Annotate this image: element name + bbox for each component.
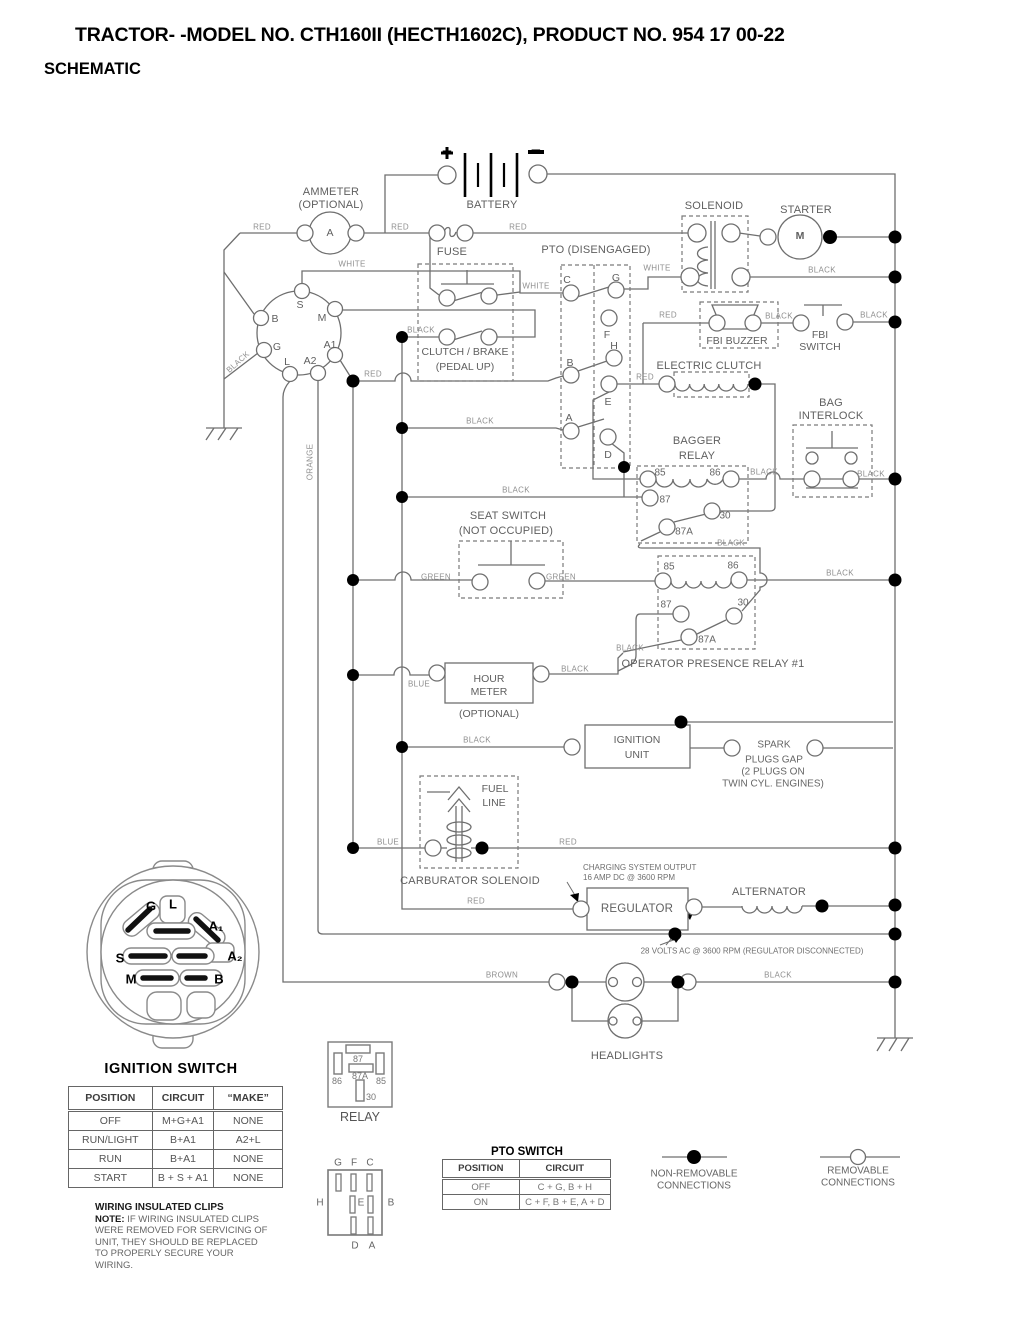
headlights-label: HEADLIGHTS: [591, 1050, 663, 1062]
pto-label: PTO (DISENGAGED): [541, 244, 650, 256]
wire-black-3: BLACK: [860, 311, 888, 320]
line-label: LINE: [482, 797, 505, 809]
wire-black-14: BLACK: [764, 971, 792, 980]
conn-l: L: [169, 897, 177, 912]
pto-conn-e: E: [358, 1198, 365, 1209]
ign-pin-s: S: [296, 299, 303, 311]
wire-black-13: BLACK: [463, 736, 491, 745]
op-pin-87: 87: [660, 600, 671, 611]
unit-label: UNIT: [625, 749, 650, 761]
wire-red-5: RED: [636, 373, 654, 382]
clutch-brake-label: CLUTCH / BRAKE: [422, 346, 509, 358]
wire-white-2: WHITE: [522, 282, 549, 291]
conn-s: S: [116, 951, 125, 966]
conn-a2: A₂: [227, 949, 242, 964]
pto-pin-c: C: [563, 274, 571, 286]
wire-blue-1: BLUE: [408, 680, 430, 689]
bag-interlock-label: INTERLOCK: [799, 410, 864, 422]
pto-th-position: POSITION: [443, 1160, 520, 1179]
charging-output-label-2: 16 AMP DC @ 3600 RPM: [583, 873, 675, 882]
bagger-pin-30: 30: [719, 511, 730, 522]
ignition-switch-table: POSITION CIRCUIT “MAKE” OFF M+G+A1 NONE …: [68, 1086, 283, 1188]
conn-a1: A₁: [209, 919, 224, 934]
ammeter-label: AMMETER: [303, 186, 359, 198]
relay-conn-30: 30: [366, 1092, 376, 1102]
ammeter-optional-label: (OPTIONAL): [299, 199, 364, 211]
carburetor-solenoid-label: CARBURATOR SOLENOID: [400, 875, 540, 887]
battery-plus: +: [442, 142, 452, 162]
pto-pin-e: E: [604, 396, 611, 408]
bagger-relay-label: RELAY: [679, 450, 715, 462]
seat-switch-label: SEAT SWITCH: [470, 510, 546, 522]
wire-red-8: RED: [467, 897, 485, 906]
wire-red-2: RED: [391, 223, 409, 232]
table-row: RUN/LIGHT B+A1 A2+L: [69, 1131, 283, 1150]
wiring-note-title: WIRING INSULATED CLIPS: [95, 1202, 224, 1213]
wiring-note: WIRING INSULATED CLIPS NOTE: IF WIRING I…: [95, 1202, 271, 1272]
solenoid-label: SOLENOID: [685, 200, 743, 212]
two-plugs-label: (2 PLUGS ON: [741, 767, 804, 778]
pto-conn-g: G: [334, 1158, 342, 1169]
ammeter-a: A: [326, 227, 333, 239]
wiring-note-label: NOTE:: [95, 1214, 125, 1225]
pto-pin-b: B: [566, 357, 573, 369]
wire-black-4: BLACK: [407, 326, 435, 335]
table-row: OFF C + G, B + H: [443, 1179, 611, 1195]
wire-green-1: GREEN: [421, 573, 451, 582]
meter-label: METER: [471, 686, 508, 698]
op-pin-85: 85: [663, 562, 674, 573]
pto-conn-d: D: [351, 1241, 358, 1252]
bag-label: BAG: [819, 397, 843, 409]
legend-removable-2: CONNECTIONS: [821, 1178, 895, 1189]
wire-orange-1: ORANGE: [306, 444, 315, 480]
wire-red-3: RED: [509, 223, 527, 232]
wires: [206, 174, 913, 1051]
fbi-switch-label: SWITCH: [799, 341, 840, 353]
wire-green-2: GREEN: [546, 573, 576, 582]
wire-blue-2: BLUE: [377, 838, 399, 847]
relay-conn-86: 86: [332, 1076, 342, 1086]
fuel-label: FUEL: [482, 783, 509, 795]
electric-clutch-box: [674, 372, 749, 397]
fuse-label: FUSE: [437, 246, 467, 258]
regulator-label: REGULATOR: [601, 903, 673, 915]
non-removable-symbol: [687, 1150, 701, 1164]
electric-clutch-label: ELECTRIC CLUTCH: [656, 360, 761, 372]
relay-conn-87a: 87A: [352, 1071, 368, 1081]
wire-black-11: BLACK: [561, 665, 589, 674]
schematic-page: TRACTOR- -MODEL NO. CTH160II (HECTH1602C…: [0, 0, 1024, 1322]
table-row: ON C + F, B + E, A + D: [443, 1195, 611, 1210]
hour-label: HOUR: [474, 673, 505, 685]
bagger-pin-87a: 87A: [675, 527, 693, 538]
battery-minus: −: [531, 141, 541, 161]
wire-black-8: BLACK: [857, 470, 885, 479]
ign-th-position: POSITION: [69, 1087, 153, 1111]
pto-th-circuit: CIRCUIT: [519, 1160, 610, 1179]
op-pin-86: 86: [727, 561, 738, 572]
ign-pin-m: M: [318, 312, 327, 324]
wire-red-1: RED: [253, 223, 271, 232]
pto-conn-c: C: [366, 1158, 373, 1169]
pto-conn-a: A: [369, 1241, 376, 1252]
wire-black-6: BLACK: [502, 486, 530, 495]
legend-symbols: [662, 1150, 900, 1165]
ign-pin-g: G: [273, 341, 281, 353]
bagger-pin-86: 86: [709, 468, 720, 479]
component-boxes: [445, 305, 758, 930]
bagger-label: BAGGER: [673, 435, 721, 447]
wire-red-4: RED: [364, 370, 382, 379]
ignition-unit-box: [585, 725, 690, 768]
table-row: RUN B+A1 NONE: [69, 1150, 283, 1169]
spark-label: SPARK: [757, 740, 790, 751]
plugs-gap-label: PLUGS GAP: [745, 755, 803, 766]
conn-b: B: [214, 972, 223, 987]
charging-output-label-1: CHARGING SYSTEM OUTPUT: [583, 863, 696, 872]
op-pin-30: 30: [737, 598, 748, 609]
wire-black-12: BLACK: [616, 644, 644, 653]
wire-brown-1: BROWN: [486, 971, 518, 980]
wire-white-3: WHITE: [643, 264, 670, 273]
ignition-switch-title: IGNITION SWITCH: [104, 1061, 237, 1077]
volts-annotation: 28 VOLTS AC @ 3600 RPM (REGULATOR DISCON…: [641, 947, 864, 956]
starter-label: STARTER: [780, 204, 832, 216]
wire-black-9: BLACK: [717, 539, 745, 548]
pto-pin-a: A: [565, 412, 572, 424]
fbi-label: FBI: [812, 329, 828, 341]
wire-black-5: BLACK: [466, 417, 494, 426]
ign-pin-b: B: [271, 313, 278, 325]
twin-cyl-label: TWIN CYL. ENGINES): [722, 779, 824, 790]
hour-optional-label: (OPTIONAL): [459, 708, 519, 720]
conn-m: M: [126, 972, 137, 987]
seat-not-occupied-label: (NOT OCCUPIED): [459, 525, 553, 537]
fbi-buzzer-label: FBI BUZZER: [706, 335, 767, 347]
pto-switch-table: POSITION CIRCUIT OFF C + G, B + H ON C +…: [442, 1159, 611, 1210]
alternator-label: ALTERNATOR: [732, 886, 806, 898]
ign-th-make: “MAKE”: [214, 1087, 283, 1111]
relay-conn-title: RELAY: [340, 1110, 380, 1124]
ign-pin-a1: A1: [324, 339, 337, 351]
pto-conn-f: F: [351, 1158, 357, 1169]
pto-conn-h: H: [316, 1198, 323, 1209]
table-row: OFF M+G+A1 NONE: [69, 1111, 283, 1131]
table-row: START B + S + A1 NONE: [69, 1169, 283, 1188]
ign-pin-a2: A2: [304, 355, 317, 367]
ignition-label: IGNITION: [614, 734, 661, 746]
wire-black-7: BLACK: [750, 468, 778, 477]
removable-symbol: [851, 1150, 866, 1165]
operator-presence-relay-label: OPERATOR PRESENCE RELAY #1: [622, 658, 805, 670]
pto-pin-g: G: [612, 272, 620, 284]
legend-removable-1: REMOVABLE: [827, 1166, 889, 1177]
starter-m: M: [796, 230, 805, 242]
wire-red-7: RED: [559, 838, 577, 847]
bagger-pin-85: 85: [654, 468, 665, 479]
wire-white-1: WHITE: [338, 260, 365, 269]
bagger-pin-87: 87: [659, 495, 670, 506]
pto-pin-h: H: [610, 340, 618, 352]
pto-table-title: PTO SWITCH: [491, 1146, 563, 1158]
pto-pin-d: D: [604, 449, 612, 461]
wire-red-6: RED: [659, 311, 677, 320]
op-pin-87a: 87A: [698, 635, 716, 646]
relay-conn-87: 87: [353, 1054, 363, 1064]
pto-switch-connector: [328, 1170, 382, 1235]
ign-th-circuit: CIRCUIT: [152, 1087, 214, 1111]
ign-pin-l: L: [284, 356, 290, 368]
legend-non-removable-2: CONNECTIONS: [657, 1181, 731, 1192]
battery-label: BATTERY: [466, 199, 517, 211]
pedal-up-label: (PEDAL UP): [436, 361, 495, 373]
conn-g: G: [146, 899, 156, 914]
wire-black-2: BLACK: [765, 312, 793, 321]
pto-conn-b: B: [388, 1198, 395, 1209]
relay-conn-85: 85: [376, 1076, 386, 1086]
wire-black-10: BLACK: [826, 569, 854, 578]
legend-non-removable-1: NON-REMOVABLE: [650, 1169, 737, 1180]
wire-black-1: BLACK: [808, 266, 836, 275]
